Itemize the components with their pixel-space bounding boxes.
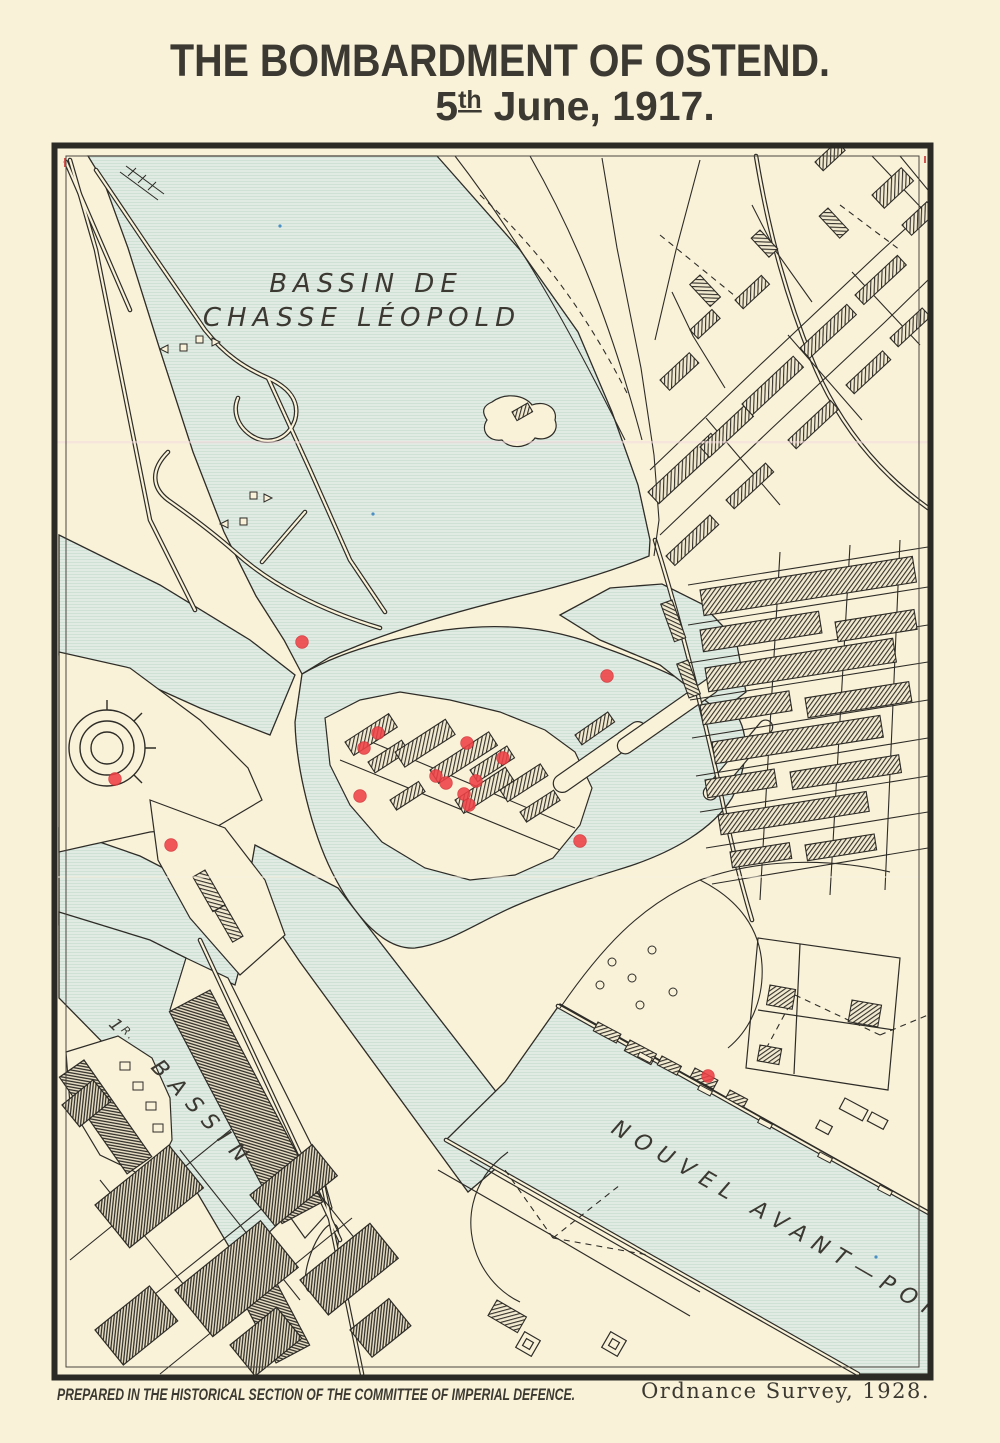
page-title: THE BOMBARDMENT OF OSTEND. 5thJune, 1917… <box>170 35 830 129</box>
credit-ordnance-survey: Ordnance Survey, 1928. <box>641 1379 930 1403</box>
credit-prepared-by: PREPARED IN THE HISTORICAL SECTION OF TH… <box>57 1385 575 1404</box>
impact-dot <box>358 742 371 755</box>
impact-dot <box>497 752 510 765</box>
impact-dot <box>165 839 178 852</box>
impact-dot <box>470 775 483 788</box>
label-bassin-de: BASSIN DE <box>269 269 463 299</box>
scanned-map-page: THE BOMBARDMENT OF OSTEND. 5thJune, 1917… <box>0 0 1000 1443</box>
impact-dot <box>109 773 122 786</box>
ostend-bombardment-map: THE BOMBARDMENT OF OSTEND. 5thJune, 1917… <box>0 0 1000 1443</box>
title-text: THE BOMBARDMENT OF OSTEND. <box>170 35 830 86</box>
title-date: 5thJune, 1917. <box>435 83 715 129</box>
impact-dot <box>461 737 474 750</box>
impact-dot <box>601 670 614 683</box>
impact-dot <box>702 1070 715 1083</box>
impact-dot <box>574 835 587 848</box>
impact-dot <box>354 790 367 803</box>
impact-dot <box>440 777 453 790</box>
impact-dot <box>463 799 476 812</box>
impact-dot <box>296 636 309 649</box>
label-chasse-leopold: CHASSE LÉOPOLD <box>203 301 521 333</box>
impact-dot <box>372 727 385 740</box>
